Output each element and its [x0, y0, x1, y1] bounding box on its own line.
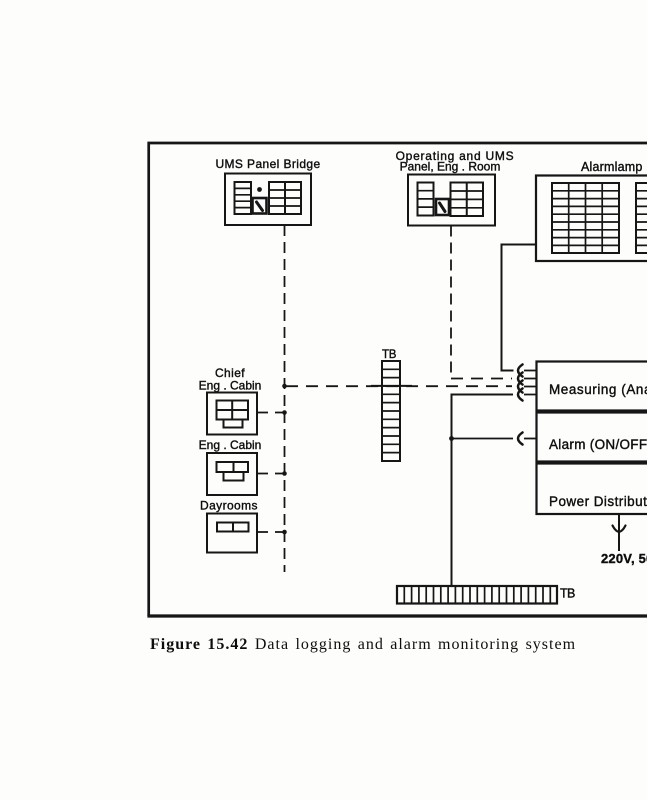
- svg-text:Power Distribution: Power Distribution: [549, 494, 647, 509]
- svg-text:UMS Panel Bridge: UMS Panel Bridge: [215, 157, 320, 171]
- svg-text:TB: TB: [382, 349, 397, 361]
- svg-text:TB: TB: [560, 587, 575, 601]
- svg-text:Figure 15.42 Data logging and: Figure 15.42 Data logging and alarm moni…: [150, 636, 576, 653]
- svg-text:220V, 50Hz: 220V, 50Hz: [601, 551, 647, 566]
- svg-text:Eng . Cabin: Eng . Cabin: [199, 438, 262, 452]
- svg-text:Eng . Cabin: Eng . Cabin: [199, 379, 262, 393]
- svg-text:Alarmlamp: Alarmlamp: [581, 160, 643, 174]
- svg-text:Measuring (Analog: Measuring (Analog: [549, 382, 647, 397]
- svg-text:Dayrooms: Dayrooms: [200, 499, 258, 513]
- svg-text:Alarm (ON/OFF): Alarm (ON/OFF): [549, 437, 647, 452]
- svg-text:Panel, Eng . Room: Panel, Eng . Room: [400, 160, 501, 174]
